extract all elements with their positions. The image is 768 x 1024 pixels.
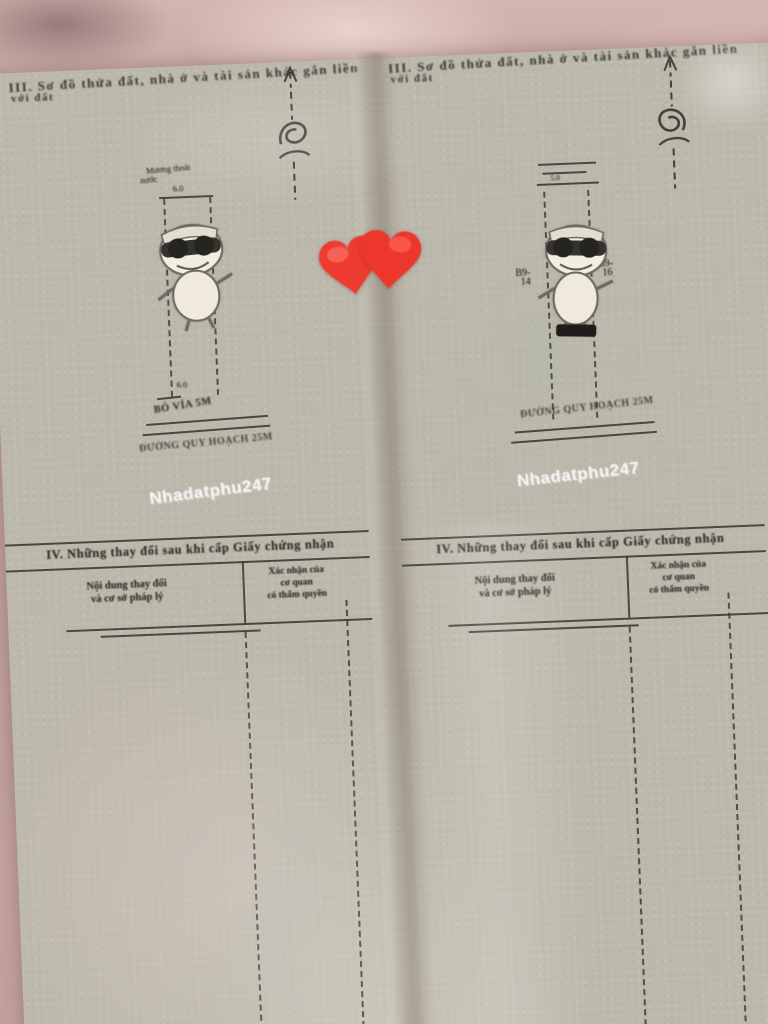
heart-sticker-right xyxy=(348,218,432,303)
dim-line-2 xyxy=(542,171,586,174)
light-sheen-band xyxy=(403,520,608,1024)
dim-line-1 xyxy=(538,162,596,166)
col-header-content-left: Nội dung thay đổi và cơ sở pháp lý xyxy=(26,575,227,609)
photo-scene: III. Sơ đồ thửa đất, nhà ở và tài sản kh… xyxy=(0,0,768,1024)
table-header-divider-left xyxy=(242,561,246,623)
cartoon-sticker-cover-right xyxy=(530,220,621,344)
watermark-left: Nhadatphu247 xyxy=(148,474,273,509)
road-line-1 xyxy=(146,415,268,426)
road-label-right: ĐƯỜNG QUY HOẠCH 25M xyxy=(520,395,654,421)
table-column-dash-right xyxy=(629,627,651,1024)
neighbor-plot-left: B9- 14 xyxy=(514,268,531,287)
col-header-confirm-right: Xác nhận của cơ quan có thẩm quyền xyxy=(632,558,725,598)
curb-tick xyxy=(157,396,181,401)
dim-line-3 xyxy=(537,181,599,185)
watermark-right: Nhadatphu247 xyxy=(516,458,641,491)
table-right-border-dash-right xyxy=(727,593,751,1024)
dimension-bottom-left: 6.0 xyxy=(176,380,187,389)
table-header-divider-right xyxy=(626,556,630,618)
certificate-paper: III. Sơ đồ thửa đất, nhà ở và tài sản kh… xyxy=(0,42,768,1024)
cartoon-sticker-cover-left xyxy=(142,215,246,341)
col-header-confirm-left: Xác nhận của cơ quan có thẩm quyền xyxy=(250,563,343,603)
road-line-2-r xyxy=(511,431,657,444)
section3-title-left-wrap: với đất xyxy=(11,91,55,105)
dimension-top-right: 5.0 xyxy=(550,173,560,182)
